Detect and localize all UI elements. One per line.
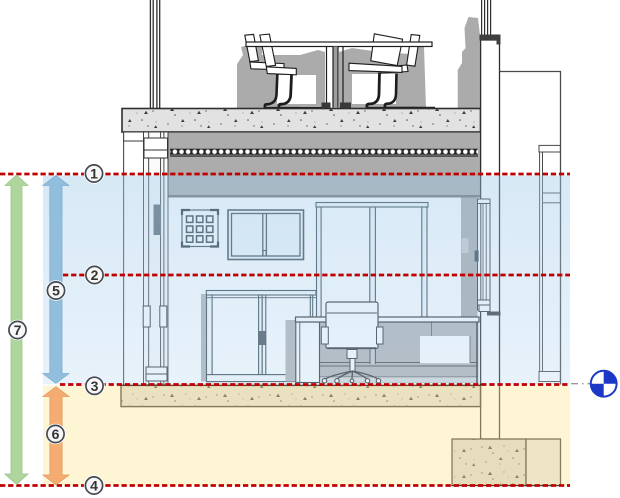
svg-text:2: 2 [91,267,99,283]
svg-text:6: 6 [52,426,60,442]
svg-text:3: 3 [91,378,99,394]
svg-text:4: 4 [90,478,98,494]
svg-text:7: 7 [14,322,22,338]
svg-text:5: 5 [52,283,60,299]
svg-text:1: 1 [90,166,98,182]
